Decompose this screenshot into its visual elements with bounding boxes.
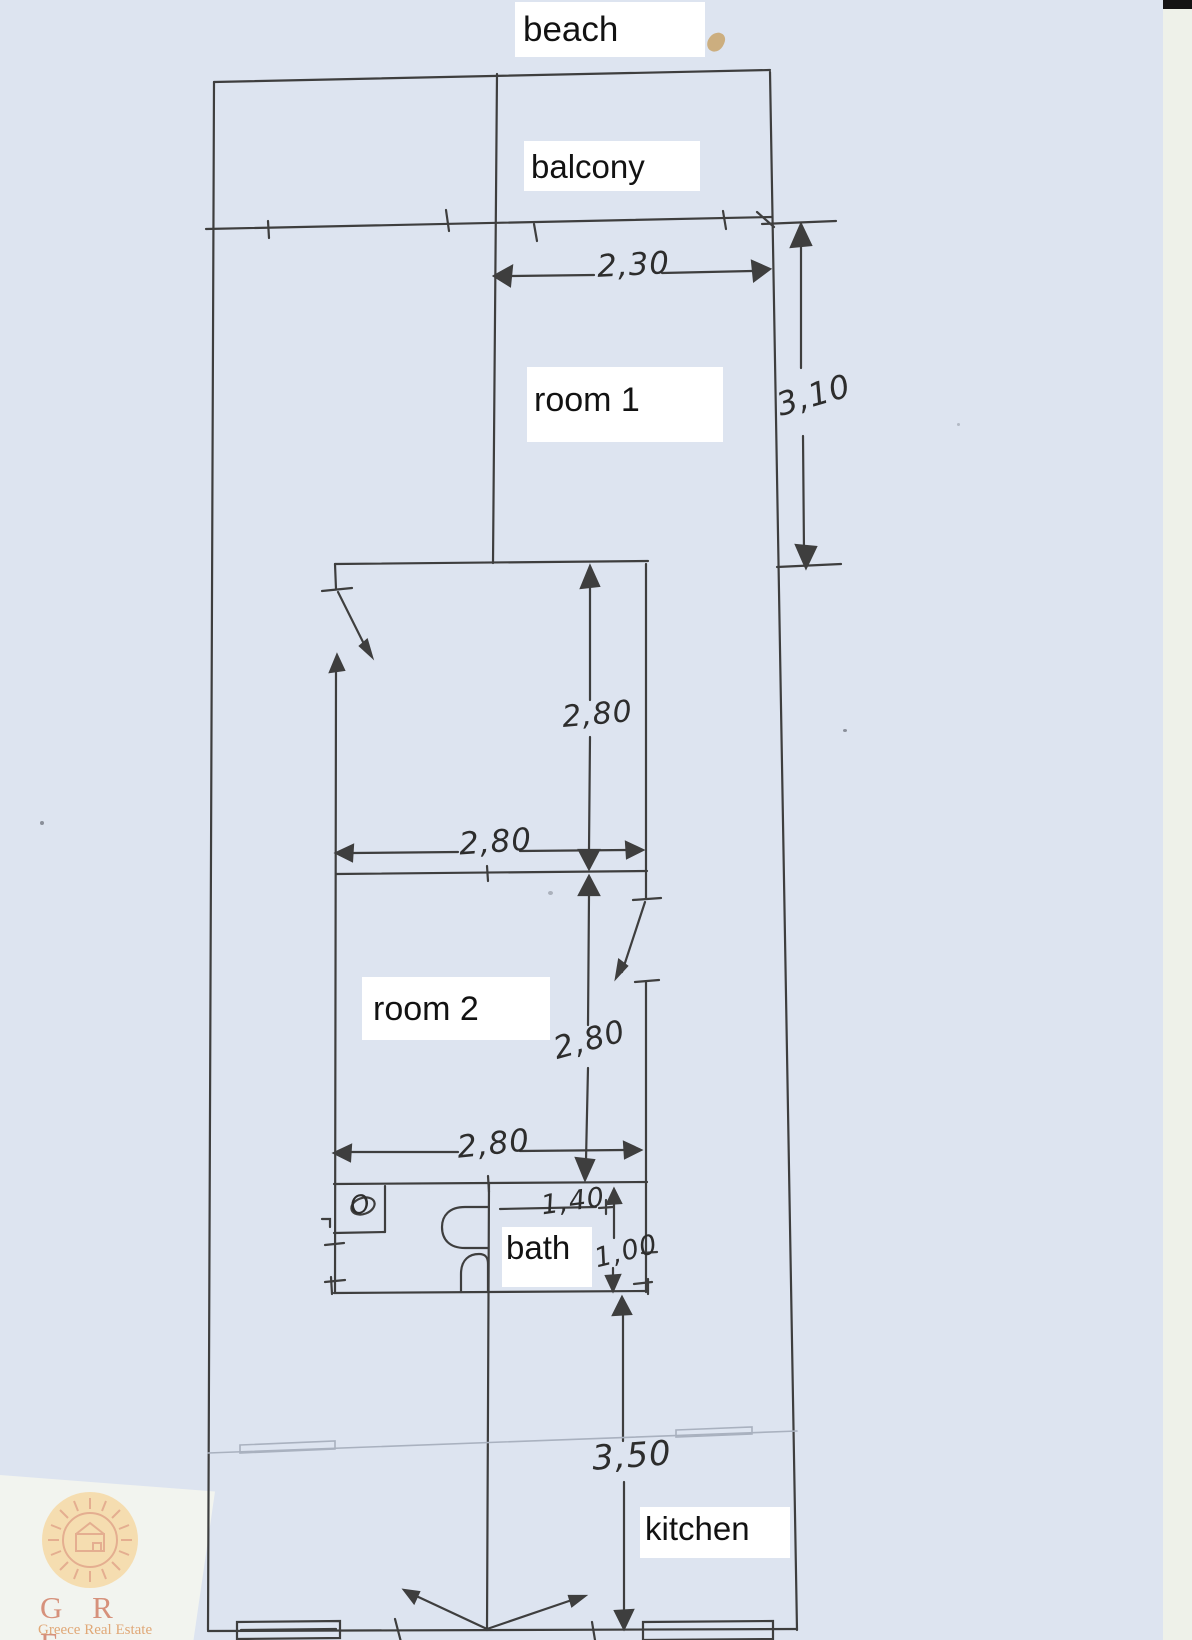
wall-left	[208, 82, 214, 1630]
bath-basin	[461, 1254, 488, 1292]
kitchen-label: kitchen	[640, 1507, 790, 1558]
door-swing-right	[487, 1601, 569, 1629]
balcony-label: balcony	[524, 141, 700, 191]
floor-plan-drawing	[0, 0, 1192, 1640]
wall-room2-left	[335, 672, 336, 1292]
beach-label: beach	[515, 2, 705, 57]
dim-balcony-width: 2,30	[596, 245, 671, 285]
wall-room2-partition	[336, 871, 647, 874]
bath-tub	[442, 1207, 488, 1248]
room1-label: room 1	[527, 367, 723, 442]
door-swing-left	[412, 1594, 487, 1629]
wall-bottom	[208, 1590, 797, 1640]
dim-room2-upper-depth: 2,80	[561, 694, 635, 735]
wall-top	[214, 70, 770, 82]
wall-bath-bottom	[334, 1291, 648, 1293]
bath-label: bath	[502, 1227, 592, 1287]
wall-center-lower	[487, 1183, 489, 1630]
dim-kitchen-depth: 3,50	[591, 1433, 673, 1478]
logo-name: Greece Real Estate	[38, 1622, 152, 1639]
logo-sun-icon	[42, 1492, 138, 1588]
wall-kitchen-top-faint	[208, 1427, 797, 1453]
scanned-floor-plan-page: beach balcony room 1 room 2 bath kitchen…	[0, 0, 1192, 1640]
room2-label: room 2	[362, 977, 550, 1040]
dim-room2-upper-width: 2,80	[458, 821, 533, 862]
wall-right	[770, 72, 797, 1630]
room2-right-door-leaf	[622, 902, 645, 972]
dim-room2-lower-width: 2,80	[455, 1122, 531, 1165]
wall-balcony-bottom	[206, 217, 772, 229]
wall-room2-top	[335, 561, 648, 564]
wall-balcony-divider	[493, 74, 497, 563]
